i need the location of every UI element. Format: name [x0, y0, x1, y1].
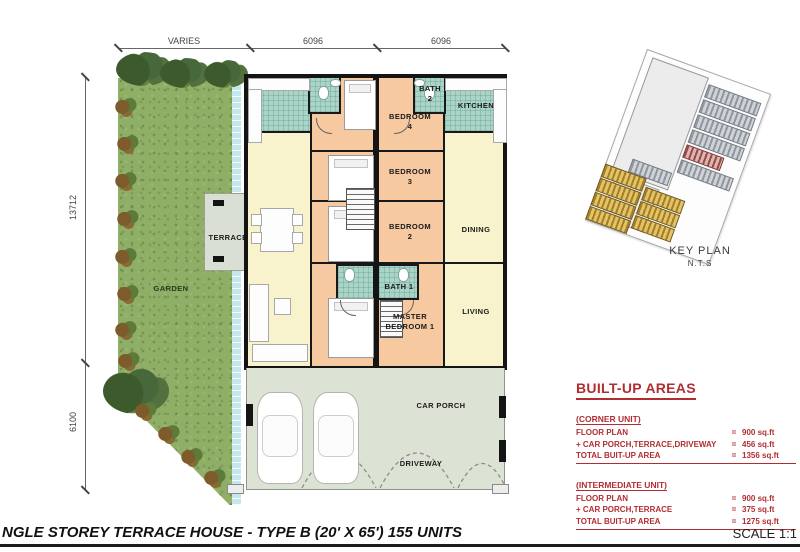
dimension-line [85, 77, 86, 490]
corner-unit-section: (CORNER UNIT) FLOOR PLAN = 900 sq.ft + C… [576, 409, 796, 464]
chair [292, 214, 303, 226]
row-label: FLOOR PLAN [576, 493, 726, 505]
sheet-title: NGLE STOREY TERRACE HOUSE - TYPE B (20' … [2, 524, 462, 541]
built-up-areas-heading: BUILT-UP AREAS [576, 380, 696, 400]
corner-unit-header: (CORNER UNIT) [576, 414, 641, 425]
dining-table [260, 208, 294, 252]
kitchen-label: KITCHEN [458, 101, 494, 111]
gate-post [227, 484, 244, 494]
porch-pillar [499, 440, 506, 462]
key-plan-title: KEY PLAN [640, 245, 760, 257]
porch-pillar [499, 396, 506, 418]
car-top-view [313, 392, 359, 484]
room-bath1-left [336, 264, 377, 300]
dining-label: DINING [462, 225, 491, 235]
dimension-line [118, 48, 505, 49]
tree [204, 60, 248, 88]
row-label: FLOOR PLAN [576, 427, 726, 439]
bush [201, 467, 228, 488]
bush [178, 446, 205, 467]
master-bedroom-label: MASTER BEDROOM 1 [385, 312, 434, 332]
bush [114, 283, 141, 304]
chair [292, 232, 303, 244]
bed [344, 80, 376, 130]
terrace-label: TERRACE [208, 233, 247, 243]
bath2-label: BATH 2 [419, 84, 441, 104]
key-plan-nts: N.T.S [640, 259, 760, 268]
terrace-step [213, 200, 224, 206]
bedroom2-label: BEDROOM 2 [389, 222, 431, 242]
row-label: + CAR PORCH,TERRACE,DRIVEWAY [576, 439, 726, 451]
row-equals: = [726, 427, 742, 439]
bush [155, 423, 182, 444]
table-row: + CAR PORCH,TERRACE,DRIVEWAY = 456 sq.ft [576, 439, 796, 451]
staircase [346, 188, 375, 230]
sofa [252, 344, 308, 362]
total-label: TOTAL BUIT-UP AREA [576, 516, 726, 528]
bush [114, 208, 141, 229]
driveway-label: DRIVEWAY [400, 459, 443, 469]
row-value: 456 sq.ft [742, 439, 796, 451]
table-row: FLOOR PLAN = 900 sq.ft [576, 427, 796, 439]
toilet [318, 86, 329, 100]
coffee-table [274, 298, 291, 315]
gate-post [492, 484, 509, 494]
bush [114, 133, 141, 154]
dim-6100: 6100 [68, 412, 78, 432]
total-label: TOTAL BUIT-UP AREA [576, 450, 726, 462]
porch-pillar [246, 404, 253, 426]
room-dining-right [443, 131, 507, 264]
bush [112, 319, 139, 340]
floor-plan-sheet: VARIES 6096 6096 13712 6100 GARDEN TERRA… [0, 0, 800, 552]
row-value: 900 sq.ft [742, 427, 796, 439]
bath1-label: BATH 1 [385, 282, 414, 292]
built-up-areas-panel: BUILT-UP AREAS (CORNER UNIT) FLOOR PLAN … [576, 380, 796, 541]
drain-strip [232, 78, 241, 505]
row-equals: = [726, 493, 742, 505]
total-value: 1356 sq.ft [742, 450, 796, 462]
row-value: 375 sq.ft [742, 504, 796, 516]
chair [251, 214, 262, 226]
table-row: FLOOR PLAN = 900 sq.ft [576, 493, 796, 505]
row-equals: = [726, 504, 742, 516]
toilet [344, 268, 355, 282]
bush [132, 400, 159, 421]
intermediate-unit-header: (INTERMEDIATE UNIT) [576, 480, 667, 491]
row-label: + CAR PORCH,TERRACE [576, 504, 726, 516]
bush [115, 350, 142, 371]
chair [251, 232, 262, 244]
bush [112, 246, 139, 267]
row-value: 900 sq.ft [742, 493, 796, 505]
scale-note: SCALE 1:1 [733, 526, 797, 541]
dim-6096-right: 6096 [431, 36, 451, 46]
sink [330, 79, 341, 87]
car-top-view [257, 392, 303, 484]
total-equals: = [726, 450, 742, 462]
key-plan [585, 49, 771, 265]
total-row: TOTAL BUIT-UP AREA = 1356 sq.ft [576, 450, 796, 464]
kitchen-counter [248, 89, 262, 143]
bush [112, 170, 139, 191]
dim-13712: 13712 [68, 195, 78, 220]
sofa [249, 284, 269, 342]
garden-label: GARDEN [154, 284, 189, 294]
terrace-step [213, 256, 224, 262]
car-porch-label: CAR PORCH [416, 401, 465, 411]
title-rule [0, 544, 800, 547]
living-label: LIVING [462, 307, 489, 317]
bush [112, 96, 139, 117]
intermediate-unit-section: (INTERMEDIATE UNIT) FLOOR PLAN = 900 sq.… [576, 475, 796, 530]
toilet [398, 268, 409, 282]
table-row: + CAR PORCH,TERRACE = 375 sq.ft [576, 504, 796, 516]
dim-6096-left: 6096 [303, 36, 323, 46]
row-equals: = [726, 439, 742, 451]
dim-varies: VARIES [168, 36, 200, 46]
tree [160, 58, 210, 88]
bedroom4-label: BEDROOM 4 [389, 112, 431, 132]
kitchen-counter [493, 89, 507, 143]
bedroom3-label: BEDROOM 3 [389, 167, 431, 187]
